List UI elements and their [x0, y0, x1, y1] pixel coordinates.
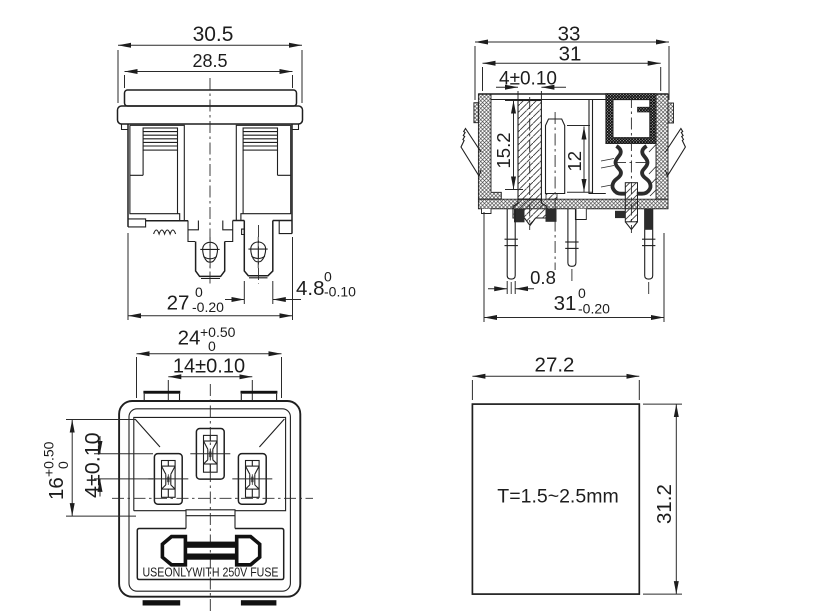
svg-text:0: 0 [195, 284, 203, 300]
svg-text:+0.50: +0.50 [200, 324, 236, 340]
svg-text:4.8: 4.8 [296, 277, 325, 300]
svg-text:0.8: 0.8 [530, 267, 556, 288]
svg-text:4±0.10: 4±0.10 [499, 68, 557, 89]
svg-text:14±0.10: 14±0.10 [173, 355, 245, 377]
svg-text:4±0.10: 4±0.10 [81, 432, 105, 498]
svg-text:27: 27 [167, 292, 190, 315]
svg-text:12: 12 [564, 151, 585, 172]
svg-text:-0.10: -0.10 [324, 284, 356, 300]
svg-text:USEONLYWITH 250V FUSE: USEONLYWITH 250V FUSE [143, 564, 279, 579]
svg-text:27.2: 27.2 [535, 354, 575, 377]
svg-text:31: 31 [559, 43, 582, 66]
svg-text:-0.20: -0.20 [192, 299, 224, 315]
svg-text:28.5: 28.5 [192, 51, 227, 71]
svg-text:+0.50: +0.50 [41, 441, 57, 477]
svg-text:24: 24 [178, 327, 201, 350]
svg-text:15.2: 15.2 [493, 132, 514, 168]
svg-text:0: 0 [208, 338, 216, 354]
svg-text:31.2: 31.2 [653, 484, 676, 524]
svg-text:0: 0 [55, 461, 71, 469]
svg-text:0: 0 [578, 285, 586, 301]
svg-text:-0.20: -0.20 [578, 301, 610, 317]
svg-text:16: 16 [45, 477, 68, 500]
svg-text:30.5: 30.5 [193, 23, 234, 46]
svg-text:T=1.5~2.5mm: T=1.5~2.5mm [497, 486, 618, 508]
svg-text:31: 31 [554, 292, 577, 315]
svg-text:0: 0 [324, 269, 332, 285]
